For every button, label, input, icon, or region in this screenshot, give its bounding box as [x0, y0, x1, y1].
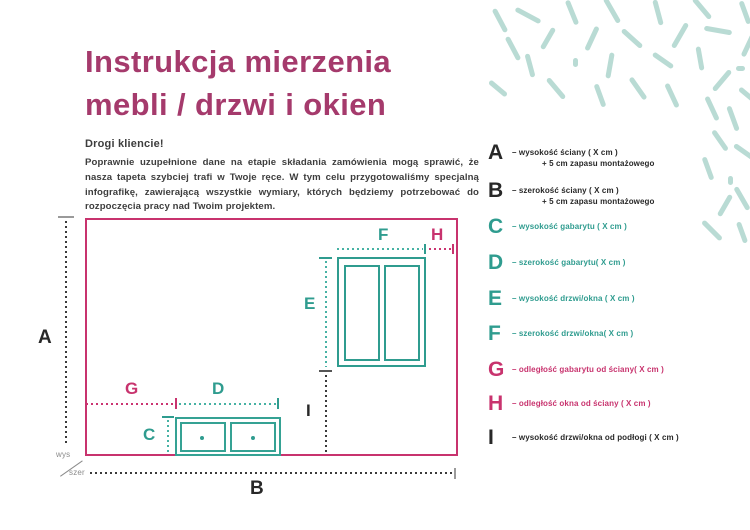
- diagram-label-e: E: [304, 294, 316, 314]
- axis-label-szer: szer: [69, 468, 85, 477]
- decor-dash: [711, 129, 729, 152]
- decor-dash: [524, 53, 535, 77]
- diagram-label-g: G: [125, 379, 139, 399]
- decor-dash: [605, 52, 614, 78]
- measure-b-line: [90, 472, 453, 474]
- measure-g-line: [86, 403, 174, 405]
- decor-dash: [621, 27, 644, 48]
- measure-i-line: [325, 375, 327, 453]
- decor-dash: [738, 86, 750, 104]
- decor-dash: [741, 33, 750, 57]
- decor-dash: [695, 46, 704, 71]
- decor-dash: [717, 193, 733, 216]
- decor-dash: [702, 156, 715, 180]
- measure-c-top-tick: [162, 416, 174, 418]
- page-title: Instrukcja mierzenia mebli / drzwi i oki…: [85, 40, 505, 126]
- decor-dash: [728, 176, 733, 185]
- decor-dash: [573, 58, 578, 67]
- diagram-label-d: D: [212, 379, 225, 399]
- measure-e-line: [325, 261, 327, 367]
- decor-dash: [628, 76, 647, 100]
- diagram-label-a: A: [38, 327, 52, 349]
- measure-f-end-tick: [424, 244, 426, 254]
- decor-dash: [733, 142, 750, 161]
- axis-label-wys: wys: [56, 450, 70, 459]
- decor-dash: [652, 51, 675, 69]
- measure-a-line: [65, 221, 67, 444]
- decor-dash: [505, 35, 522, 60]
- window-pane-left: [344, 265, 380, 361]
- measure-e-top-tick: [319, 257, 332, 259]
- decor-dash: [736, 221, 748, 243]
- decor-dash: [739, 0, 750, 24]
- decor-dash: [584, 25, 600, 51]
- decor-dash: [692, 0, 713, 20]
- decor-dash: [546, 76, 567, 99]
- window-pane-right: [384, 265, 420, 361]
- measure-d-end-tick: [277, 398, 279, 409]
- page-title-line1: Instrukcja mierzenia: [85, 40, 505, 83]
- measure-c-line: [167, 420, 169, 455]
- decor-dash: [712, 68, 733, 91]
- measure-a-top-tick: [58, 216, 74, 218]
- cabinet-knob-right: [251, 436, 255, 440]
- decor-dash: [726, 105, 740, 131]
- decor-dash: [671, 22, 689, 49]
- measure-g-end-tick: [175, 398, 177, 409]
- measure-i-top-tick: [319, 370, 332, 372]
- greeting-text: Drogi kliencie!: [85, 138, 164, 150]
- diagram-label-b: B: [250, 478, 264, 500]
- decor-dash: [603, 0, 621, 23]
- diagram-label-h: H: [431, 225, 444, 245]
- diagram-label-i: I: [306, 401, 311, 421]
- decor-dash: [565, 0, 579, 25]
- decor-dash: [594, 83, 607, 107]
- page-title-line2: mebli / drzwi i okien: [85, 83, 505, 126]
- measure-d-line: [179, 403, 277, 405]
- diagram-label-c: C: [143, 425, 156, 445]
- decor-dash: [514, 6, 541, 24]
- measure-h-line: [429, 248, 452, 250]
- decor-dash: [492, 7, 509, 32]
- intro-paragraph: Poprawnie uzupełnione dane na etapie skł…: [85, 156, 479, 215]
- cabinet-knob-left: [200, 436, 204, 440]
- decor-dash: [652, 0, 664, 25]
- decor-dash: [704, 25, 732, 35]
- measure-b-end-tick: [454, 468, 456, 479]
- decor-dash: [736, 66, 745, 71]
- diagram-label-f: F: [378, 225, 389, 245]
- decor-dash: [704, 95, 720, 121]
- measure-f-line: [337, 248, 423, 250]
- decor-dash: [701, 219, 723, 241]
- measure-h-end-tick: [452, 244, 454, 254]
- decor-dash: [733, 185, 750, 210]
- decor-dash: [540, 26, 556, 49]
- decor-dash: [664, 82, 680, 108]
